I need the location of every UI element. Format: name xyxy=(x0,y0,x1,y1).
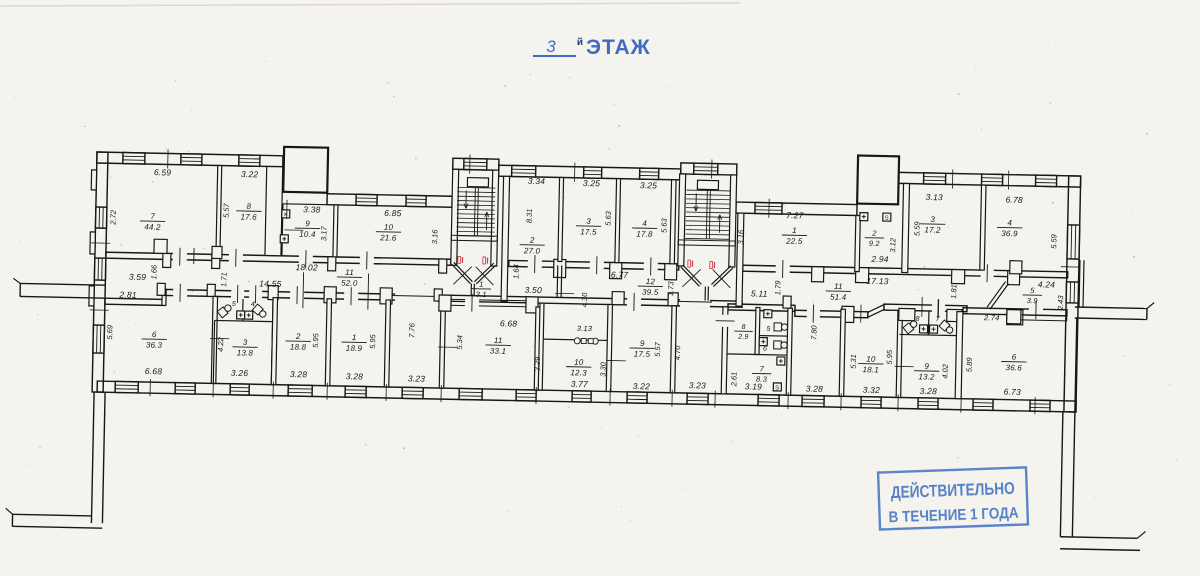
svg-text:3: 3 xyxy=(243,338,248,347)
svg-text:3.29: 3.29 xyxy=(533,356,542,372)
svg-text:17.2: 17.2 xyxy=(924,225,941,234)
svg-text:3.22: 3.22 xyxy=(241,169,259,179)
svg-text:3.19: 3.19 xyxy=(745,381,763,391)
svg-text:6.59: 6.59 xyxy=(154,167,172,177)
svg-text:й: й xyxy=(577,37,583,48)
svg-text:2.72: 2.72 xyxy=(109,209,118,226)
svg-text:4.30: 4.30 xyxy=(580,292,589,308)
svg-text:6: 6 xyxy=(763,346,767,353)
svg-text:17.5: 17.5 xyxy=(634,350,651,359)
svg-text:5.59: 5.59 xyxy=(912,221,921,237)
svg-text:3.9: 3.9 xyxy=(1027,296,1039,305)
svg-text:3.28: 3.28 xyxy=(346,371,364,381)
svg-text:27.0: 27.0 xyxy=(523,246,541,255)
svg-text:6.68: 6.68 xyxy=(145,366,163,376)
svg-text:2.61: 2.61 xyxy=(729,372,738,388)
svg-text:5: 5 xyxy=(232,301,236,308)
svg-text:1.81: 1.81 xyxy=(949,284,958,299)
svg-text:3.77: 3.77 xyxy=(571,379,589,389)
svg-text:7.76: 7.76 xyxy=(407,322,416,338)
svg-text:3.50: 3.50 xyxy=(525,285,543,295)
svg-text:1: 1 xyxy=(792,226,797,235)
svg-text:3.26: 3.26 xyxy=(231,368,249,378)
svg-text:18.02: 18.02 xyxy=(295,262,318,272)
svg-text:3: 3 xyxy=(930,215,935,224)
svg-text:5.57: 5.57 xyxy=(653,341,662,357)
svg-text:18.1: 18.1 xyxy=(862,365,879,374)
svg-text:13.8: 13.8 xyxy=(237,348,254,357)
svg-text:9: 9 xyxy=(924,362,929,371)
svg-text:36.9: 36.9 xyxy=(1001,229,1018,238)
svg-text:5.57: 5.57 xyxy=(222,202,231,218)
svg-text:10.4: 10.4 xyxy=(299,230,316,239)
svg-text:12.3: 12.3 xyxy=(570,368,587,377)
svg-text:3.25: 3.25 xyxy=(583,178,601,188)
svg-text:6: 6 xyxy=(1012,353,1017,362)
svg-text:2: 2 xyxy=(871,229,877,238)
svg-text:12: 12 xyxy=(646,277,656,286)
svg-text:2.9: 2.9 xyxy=(737,334,748,341)
svg-text:2.81: 2.81 xyxy=(118,289,137,299)
svg-text:21.6: 21.6 xyxy=(379,233,397,242)
svg-text:3.38: 3.38 xyxy=(303,204,321,214)
svg-text:5.95: 5.95 xyxy=(885,349,894,365)
svg-text:2.74: 2.74 xyxy=(983,313,1000,322)
svg-text:5.31: 5.31 xyxy=(849,354,858,369)
svg-text:2.43: 2.43 xyxy=(1056,294,1065,311)
svg-text:1.66: 1.66 xyxy=(149,264,158,280)
svg-text:51.4: 51.4 xyxy=(830,292,847,301)
svg-text:9: 9 xyxy=(640,339,645,348)
svg-text:3.22: 3.22 xyxy=(633,381,651,391)
svg-text:17.5: 17.5 xyxy=(580,227,597,236)
svg-text:3.30: 3.30 xyxy=(599,361,608,377)
svg-text:8: 8 xyxy=(247,202,252,211)
svg-text:3.16: 3.16 xyxy=(736,229,745,245)
svg-text:5.95: 5.95 xyxy=(311,332,320,348)
svg-text:5.95: 5.95 xyxy=(368,333,377,349)
svg-text:ЭТАЖ: ЭТАЖ xyxy=(586,36,651,59)
svg-text:4: 4 xyxy=(642,219,647,228)
svg-text:3.12: 3.12 xyxy=(888,237,897,253)
svg-text:3.28: 3.28 xyxy=(806,384,824,394)
svg-text:3: 3 xyxy=(586,217,591,226)
svg-text:7.80: 7.80 xyxy=(809,324,818,340)
svg-text:4.02: 4.02 xyxy=(941,363,950,379)
svg-text:1: 1 xyxy=(479,280,484,289)
svg-text:17.13: 17.13 xyxy=(866,276,889,286)
svg-text:6.68: 6.68 xyxy=(500,318,518,328)
svg-text:17.8: 17.8 xyxy=(636,230,653,239)
svg-text:6.78: 6.78 xyxy=(1005,195,1023,205)
svg-text:11: 11 xyxy=(494,336,503,345)
svg-text:✕: ✕ xyxy=(283,212,288,218)
svg-text:3.13: 3.13 xyxy=(925,192,943,202)
svg-text:39.5: 39.5 xyxy=(642,288,659,297)
svg-text:17.6: 17.6 xyxy=(240,212,257,221)
svg-text:1.71: 1.71 xyxy=(219,272,228,287)
svg-text:8.31: 8.31 xyxy=(525,208,534,223)
svg-text:8: 8 xyxy=(741,324,745,331)
svg-text:3: 3 xyxy=(546,37,556,56)
svg-text:2: 2 xyxy=(529,236,535,245)
svg-text:6.77: 6.77 xyxy=(611,270,629,280)
svg-text:9.2: 9.2 xyxy=(869,239,881,248)
svg-text:1.64: 1.64 xyxy=(511,264,520,279)
svg-text:5.59: 5.59 xyxy=(1049,233,1058,249)
svg-text:6.73: 6.73 xyxy=(1004,387,1022,397)
svg-text:5.89: 5.89 xyxy=(965,357,974,373)
svg-text:36.6: 36.6 xyxy=(1006,363,1023,372)
svg-text:3.1: 3.1 xyxy=(476,290,487,299)
svg-text:22.5: 22.5 xyxy=(785,237,803,246)
svg-text:3.25: 3.25 xyxy=(640,180,658,190)
svg-text:5: 5 xyxy=(766,326,770,333)
svg-text:5.11: 5.11 xyxy=(751,288,768,298)
svg-text:6: 6 xyxy=(152,330,157,339)
svg-text:3.59: 3.59 xyxy=(129,272,147,282)
svg-text:5.69: 5.69 xyxy=(105,324,114,340)
svg-text:S: S xyxy=(775,385,779,391)
svg-text:7.27: 7.27 xyxy=(786,210,804,220)
svg-text:18.9: 18.9 xyxy=(346,344,363,353)
svg-text:3.13: 3.13 xyxy=(577,324,593,333)
svg-text:1.73: 1.73 xyxy=(666,281,675,297)
svg-text:4: 4 xyxy=(1007,218,1012,227)
svg-text:3.28: 3.28 xyxy=(920,386,938,396)
svg-text:5.63: 5.63 xyxy=(659,217,668,233)
svg-text:3.34: 3.34 xyxy=(528,176,546,186)
svg-text:3.28: 3.28 xyxy=(290,369,308,379)
svg-text:18.8: 18.8 xyxy=(290,342,307,351)
svg-text:1: 1 xyxy=(352,333,357,342)
svg-text:2.94: 2.94 xyxy=(870,254,889,264)
svg-text:52.0: 52.0 xyxy=(341,279,358,288)
svg-text:7: 7 xyxy=(150,212,155,221)
svg-text:11: 11 xyxy=(345,268,354,277)
svg-text:44.2: 44.2 xyxy=(144,222,161,231)
svg-text:11: 11 xyxy=(834,282,843,291)
svg-text:3.17: 3.17 xyxy=(319,225,328,241)
svg-text:2: 2 xyxy=(295,332,301,341)
svg-text:33.1: 33.1 xyxy=(490,347,507,356)
svg-text:10: 10 xyxy=(866,355,876,364)
svg-text:S: S xyxy=(885,216,889,222)
svg-text:10: 10 xyxy=(384,223,394,232)
svg-text:3.32: 3.32 xyxy=(863,385,881,395)
svg-text:3.23: 3.23 xyxy=(689,380,707,390)
svg-text:1.79: 1.79 xyxy=(773,280,782,296)
svg-text:36.3: 36.3 xyxy=(146,341,163,350)
svg-text:6.85: 6.85 xyxy=(384,208,402,218)
svg-text:3.23: 3.23 xyxy=(408,373,426,383)
svg-text:5.63: 5.63 xyxy=(604,210,613,226)
svg-text:4.70: 4.70 xyxy=(673,345,682,361)
svg-text:14.55: 14.55 xyxy=(259,278,282,288)
svg-text:3.16: 3.16 xyxy=(430,229,439,245)
svg-text:4.24: 4.24 xyxy=(1038,279,1056,289)
svg-text:13.2: 13.2 xyxy=(918,372,935,381)
svg-text:9: 9 xyxy=(305,219,310,228)
svg-text:10: 10 xyxy=(574,358,584,367)
